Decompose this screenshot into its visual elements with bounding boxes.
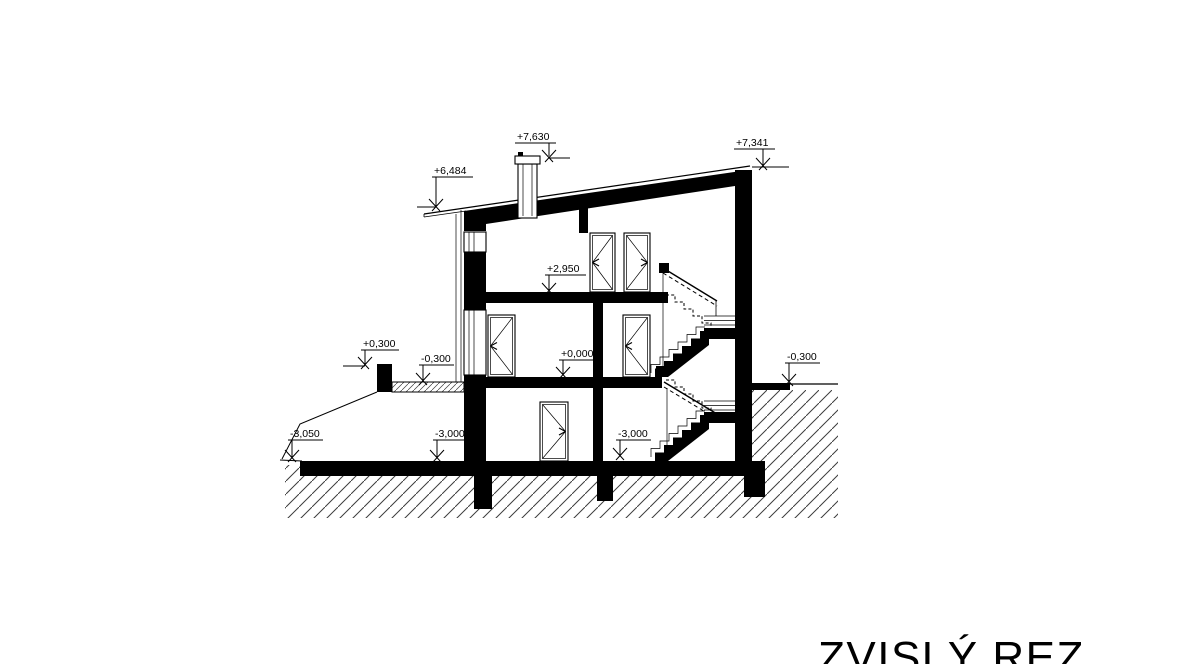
floor-slab-ground: [486, 377, 662, 388]
footing-middle: [597, 476, 613, 501]
interior-wall-ground: [593, 303, 603, 377]
canvas-background: [0, 0, 1180, 664]
floor-slab-upper: [486, 292, 668, 303]
window-ground-left: [464, 310, 486, 375]
level-label: +2,950: [547, 263, 580, 275]
chimney-cap: [515, 156, 540, 164]
level-label: -0,300: [421, 353, 451, 365]
right-wall: [735, 170, 752, 462]
interior-wall-basement: [593, 388, 603, 461]
level-label: -3,050: [290, 428, 320, 440]
left-wall: [464, 232, 486, 461]
door-ground-1: [488, 315, 515, 377]
terrace-slab: [392, 382, 464, 392]
level-label: -3,000: [618, 428, 648, 440]
drawing-page: +7,630 +6,484 +7,341 +2,950 +0,300 -0,30…: [0, 0, 1180, 664]
interior-wall-upper: [579, 208, 588, 233]
parapet-wall: [377, 364, 392, 392]
level-label: +0,000: [561, 348, 594, 360]
level-label: +0,300: [363, 338, 396, 350]
window-upper-left: [464, 232, 486, 252]
chimney: [515, 152, 540, 218]
level-label: +7,630: [517, 131, 550, 143]
door-upper-1: [590, 233, 615, 292]
door-basement: [540, 402, 568, 461]
footing-right: [744, 476, 765, 497]
footing-left: [474, 476, 492, 509]
level-label: -3,000: [435, 428, 465, 440]
basement-slab: [300, 461, 765, 476]
level-label: +7,341: [736, 137, 769, 149]
drawing-title: ZVISLÝ REZ: [818, 633, 1085, 664]
section-drawing: +7,630 +6,484 +7,341 +2,950 +0,300 -0,30…: [0, 0, 1180, 664]
chimney-body: [518, 164, 537, 218]
door-ground-2: [623, 315, 650, 377]
level-label: -0,300: [787, 351, 817, 363]
level-label: +6,484: [434, 165, 467, 177]
door-upper-2: [624, 233, 650, 292]
